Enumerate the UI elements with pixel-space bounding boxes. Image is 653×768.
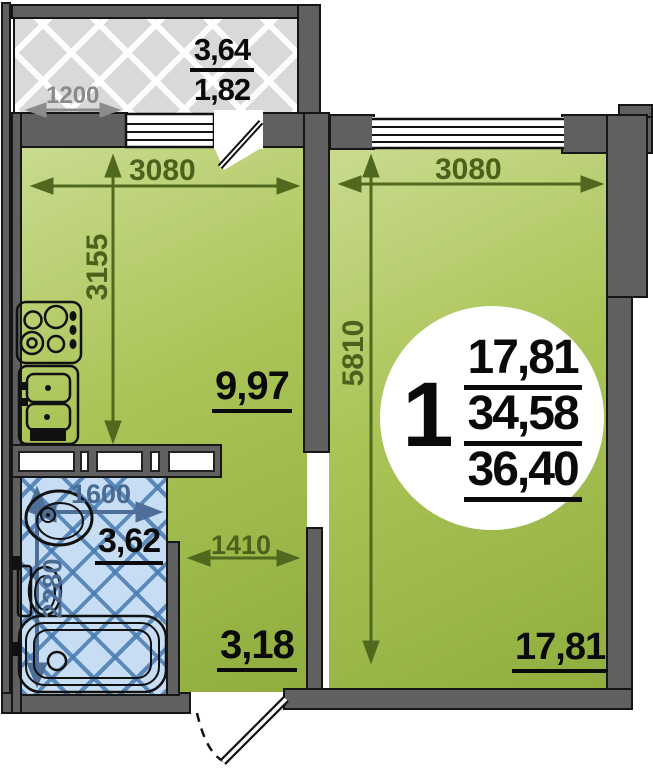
living-depth-label: 5810 [339, 308, 369, 398]
bathroom-area-label: 3,62 [95, 524, 163, 565]
wall-living-right-upper [606, 114, 648, 298]
kitchen-width-label: 3080 [129, 156, 196, 186]
floor-plan: 1200 3080 3155 3080 5810 1600 2280 1410 … [0, 0, 653, 768]
balcony-area-full: 3,64 [190, 34, 254, 72]
bathroom-width-label: 1600 [71, 481, 131, 508]
balcony-area-label: 3,64 1,82 [178, 34, 266, 105]
wall-kitchen-top-left [11, 112, 128, 148]
bathroom-depth-label: 2280 [40, 544, 67, 634]
closet-panel [96, 451, 143, 472]
kitchen-depth-label: 3155 [83, 222, 113, 312]
living-area-label: 17,81 [512, 628, 608, 673]
rooms-count: 1 [402, 363, 453, 468]
closet-panel [168, 451, 215, 472]
wall-center-lower [306, 527, 323, 698]
balcony-window-icon [126, 114, 214, 147]
living-width-label: 3080 [435, 155, 502, 185]
living-window-icon [372, 117, 564, 149]
entrance-door-swing-arc [197, 713, 223, 761]
balcony-width-label: 1200 [46, 84, 99, 108]
balcony-area-half: 1,82 [194, 74, 250, 105]
unit-main-area: 34,58 [464, 390, 582, 446]
wall-living-top-left [329, 114, 375, 150]
closet-panel [80, 451, 89, 472]
wall-center-upper [303, 112, 330, 453]
entrance-door-leaf [223, 699, 286, 762]
unit-areas: 17,81 34,58 36,40 [464, 334, 582, 502]
closet-panel [150, 451, 160, 472]
wall-kitchen-top-right [261, 112, 305, 148]
wall-living-right-lower [606, 296, 633, 710]
unit-total-area: 36,40 [464, 446, 582, 502]
unit-living-area: 17,81 [464, 334, 582, 390]
unit-info-badge: 1 17,81 34,58 36,40 [380, 306, 604, 530]
wall-living-bottom [283, 688, 633, 710]
closet-panel [18, 451, 75, 472]
hallway-width-label: 1410 [211, 532, 271, 559]
hallway-area-label: 3,18 [217, 625, 297, 672]
wall-balcony-top [11, 4, 321, 19]
wall-left-outer [1, 2, 11, 714]
kitchen-area-label: 9,97 [212, 366, 292, 413]
